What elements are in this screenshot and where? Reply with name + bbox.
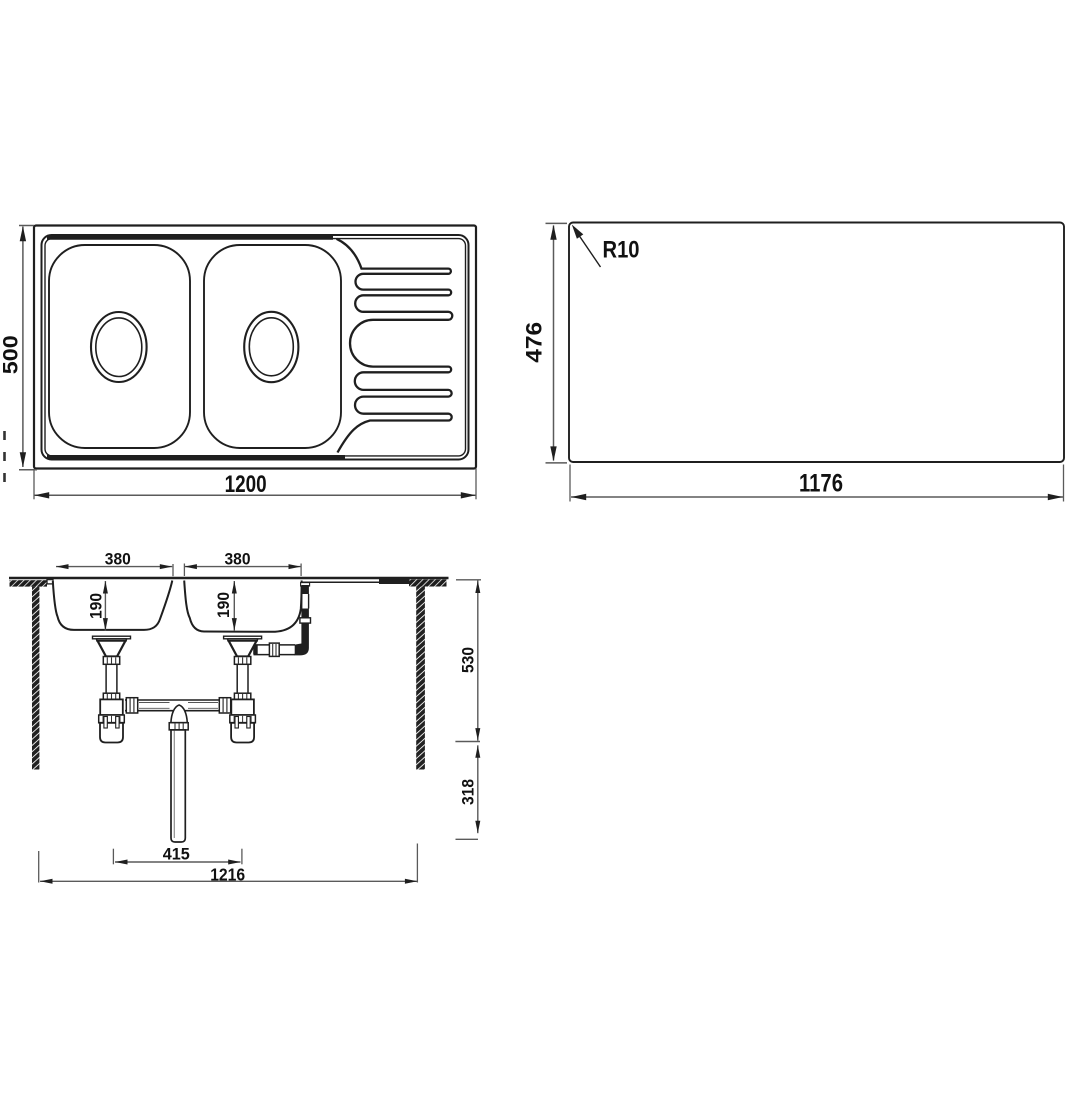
svg-text:1200: 1200 [225,471,267,498]
svg-text:380: 380 [105,549,131,568]
svg-text:500: 500 [0,335,22,374]
svg-text:476: 476 [522,322,547,363]
svg-text:380: 380 [225,549,251,568]
svg-text:190: 190 [86,593,105,619]
svg-text:530: 530 [458,647,477,673]
svg-text:1176: 1176 [799,470,843,498]
svg-text:R10: R10 [603,237,640,264]
svg-text:415: 415 [163,845,190,864]
svg-text:318: 318 [458,779,477,805]
svg-text:1216: 1216 [210,864,245,884]
svg-text:190: 190 [214,592,233,618]
